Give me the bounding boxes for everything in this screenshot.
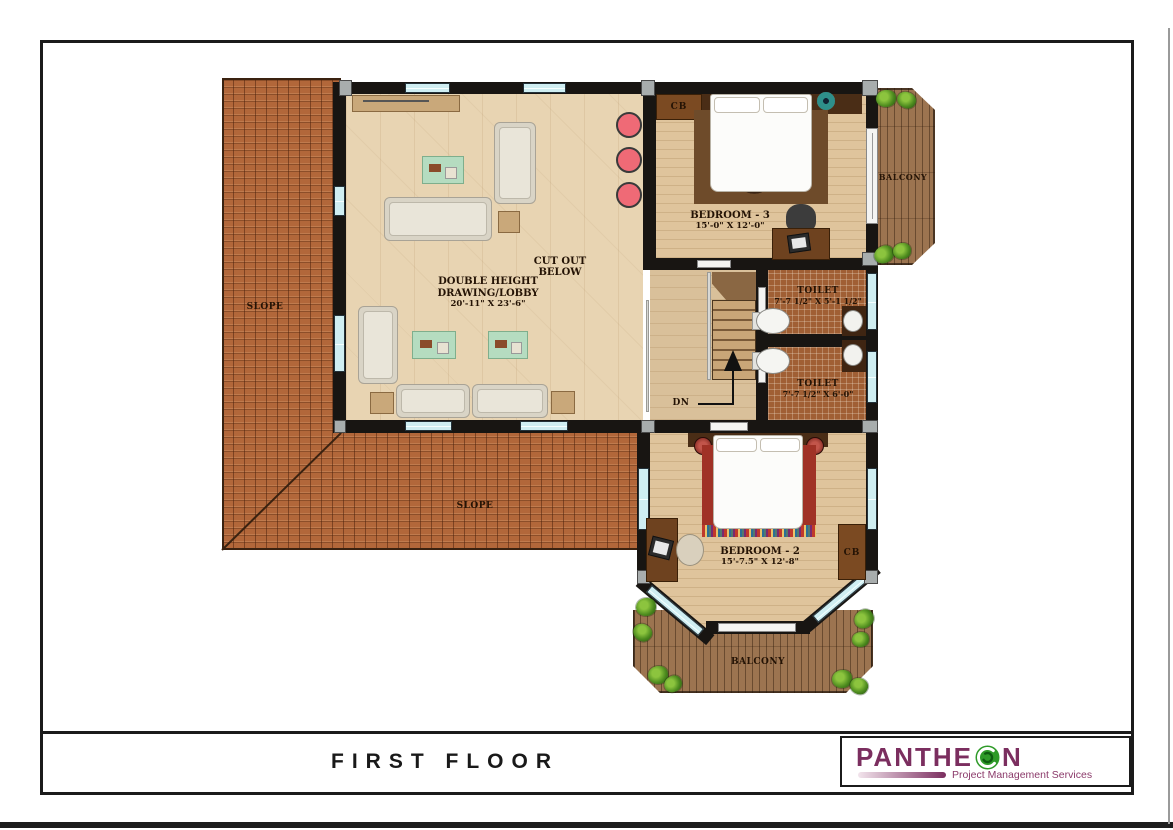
bedroom3-door bbox=[697, 260, 731, 268]
roof-edge-left bbox=[222, 78, 224, 550]
wall-bedroom3-bottom bbox=[643, 258, 878, 270]
bar-stool bbox=[616, 112, 642, 138]
window-bedroom2-right bbox=[867, 468, 877, 530]
bar-stool bbox=[616, 147, 642, 173]
sheet-bottom-edge bbox=[0, 822, 1173, 828]
logo-box: PANTHE N Project Management Services bbox=[840, 736, 1131, 787]
bedroom3-dims: 15'-0" X 12'-0" bbox=[660, 222, 800, 232]
column bbox=[862, 420, 878, 433]
sofa bbox=[384, 197, 492, 241]
pillow bbox=[716, 438, 757, 452]
plant-icon bbox=[876, 90, 896, 107]
plant-icon bbox=[636, 598, 656, 616]
side-table bbox=[498, 211, 520, 233]
plant-icon bbox=[852, 632, 869, 647]
balcony-right-label: BALCONY bbox=[870, 173, 936, 182]
down-arrow-icon bbox=[724, 350, 742, 371]
window-top-1 bbox=[405, 83, 450, 93]
logo-tagline: Project Management Services bbox=[952, 769, 1122, 781]
down-arrow-line-h bbox=[698, 403, 734, 405]
plant-icon bbox=[893, 243, 911, 259]
side-table bbox=[370, 392, 394, 414]
wc-upper bbox=[756, 308, 790, 334]
window-drawing-bottom-1 bbox=[405, 421, 452, 431]
logo-gradient-bar bbox=[858, 772, 946, 778]
roof-edge-bottom bbox=[222, 548, 637, 550]
title-separator bbox=[40, 731, 1131, 734]
window-drawing-bottom-2 bbox=[520, 421, 568, 431]
down-arrow-line-v bbox=[732, 370, 734, 405]
column bbox=[862, 80, 878, 96]
pillow bbox=[714, 97, 760, 113]
pillow bbox=[763, 97, 808, 113]
bedroom2-door bbox=[710, 422, 748, 431]
column bbox=[334, 420, 346, 433]
bedroom2-label: BEDROOM - 2 bbox=[690, 546, 830, 558]
sofa bbox=[494, 122, 536, 204]
sofa bbox=[358, 306, 398, 384]
window-left-2 bbox=[334, 315, 345, 372]
toilet-lower-label: TOILET bbox=[770, 379, 866, 389]
coffee-table bbox=[412, 331, 456, 359]
column bbox=[641, 80, 655, 96]
coffee-table bbox=[488, 331, 528, 359]
cut-out-label-2: BELOW bbox=[520, 267, 600, 279]
toilet-upper-label: TOILET bbox=[770, 286, 866, 296]
roof-left-label: SLOPE bbox=[230, 302, 300, 312]
coffee-table bbox=[422, 156, 464, 184]
wall-left bbox=[333, 82, 346, 433]
floor-plan-sheet: SLOPE SLOPE bbox=[0, 0, 1173, 830]
drawing-room-dims: 20'-11" X 23'-6" bbox=[408, 300, 568, 310]
balcony-bottom-door bbox=[718, 623, 796, 632]
sofa bbox=[472, 384, 548, 418]
stair-railing bbox=[707, 272, 711, 380]
window-left-1 bbox=[334, 186, 345, 216]
column bbox=[339, 80, 352, 96]
roof-edge-top bbox=[222, 78, 341, 80]
toilet-lower-dims: 7'-7 1/2" X 6'-0" bbox=[762, 390, 874, 399]
sink-upper bbox=[843, 310, 863, 332]
bedroom3-label: BEDROOM - 3 bbox=[660, 210, 800, 222]
bedroom2-dims: 15'-7.5" X 12'-8" bbox=[690, 558, 830, 568]
pillow bbox=[760, 438, 800, 452]
cut-out-label-1: CUT OUT bbox=[520, 256, 600, 268]
sheet-right-edge bbox=[1168, 28, 1170, 824]
toilet-upper-dims: 7'-7 1/2" X 5'-1 1/2" bbox=[762, 297, 874, 306]
balcony-bottom-label: BALCONY bbox=[713, 657, 803, 667]
column bbox=[641, 420, 655, 433]
ceiling-fan-icon bbox=[817, 92, 835, 110]
drawing-room-label-2: DRAWING/LOBBY bbox=[408, 288, 568, 300]
side-table bbox=[551, 391, 575, 414]
roof-bottom-label: SLOPE bbox=[440, 501, 510, 511]
wc-lower bbox=[756, 348, 790, 374]
console-table bbox=[352, 95, 460, 112]
bedroom2-closet-label: CB bbox=[838, 548, 866, 558]
sheet-title: FIRST FLOOR bbox=[280, 750, 610, 774]
swirl-o-icon bbox=[974, 744, 1001, 771]
sink-lower bbox=[843, 344, 863, 366]
bar-stool bbox=[616, 182, 642, 208]
stairs-dn-label: DN bbox=[668, 398, 694, 408]
laptop-icon bbox=[787, 233, 811, 254]
wall-drawing-right bbox=[643, 82, 656, 270]
void-railing bbox=[646, 300, 649, 412]
window-top-2 bbox=[523, 83, 566, 93]
sofa bbox=[396, 384, 470, 418]
column bbox=[864, 570, 878, 584]
